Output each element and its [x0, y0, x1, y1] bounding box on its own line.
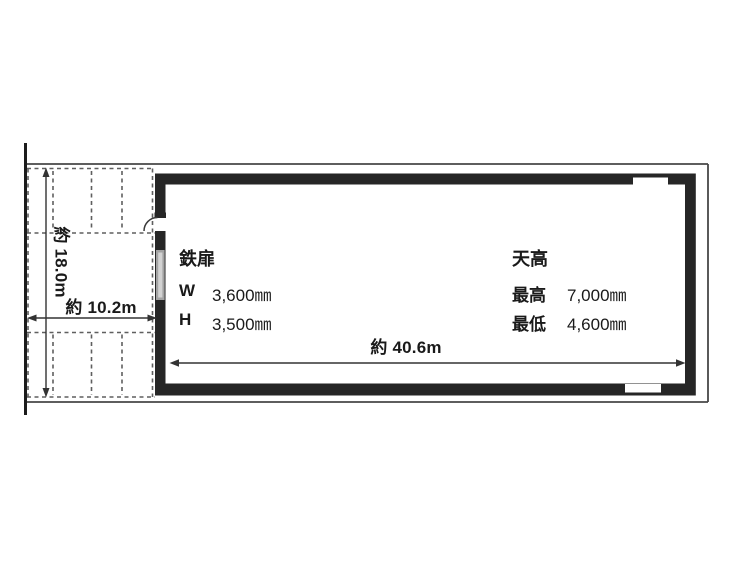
- ceiling-height-title: 天高: [512, 245, 627, 271]
- steel-door-h-label: H: [179, 310, 212, 335]
- ceiling-min-label: 最低: [512, 310, 567, 335]
- floor-plan-canvas: 約 40.6m 約 10.2m 約 18.0m 鉄扉 W 3,600㎜ H 3,…: [0, 0, 750, 563]
- entry-door-gap: [155, 218, 167, 232]
- steel-door-rows: W 3,600㎜ H 3,500㎜: [179, 281, 272, 335]
- steel-door-marker: [156, 250, 165, 300]
- steel-door-spec: 鉄扉 W 3,600㎜ H 3,500㎜: [179, 245, 272, 335]
- dim-width-label: 約 40.6m: [370, 339, 441, 356]
- steel-door-w-value: 3,600㎜: [212, 281, 272, 306]
- ceiling-max-label: 最高: [512, 281, 567, 306]
- floor-plan-drawing: [0, 0, 750, 563]
- dim-frontage-label: 約 10.2m: [65, 299, 136, 316]
- ceiling-min-value: 4,600㎜: [567, 310, 627, 335]
- steel-door-rect-inner: [158, 253, 162, 298]
- ceiling-height-rows: 最高 7,000㎜ 最低 4,600㎜: [512, 281, 627, 335]
- entry-door-swing: [144, 213, 166, 232]
- dim-depth-arrow-bottom: [43, 388, 50, 398]
- steel-door-w-label: W: [179, 281, 212, 306]
- bottom-wall-opening: [625, 384, 661, 393]
- ceiling-max-value: 7,000㎜: [567, 281, 627, 306]
- ceiling-height-spec: 天高 最高 7,000㎜ 最低 4,600㎜: [512, 245, 627, 335]
- dim-depth: [43, 168, 50, 398]
- steel-door-h-value: 3,500㎜: [212, 310, 272, 335]
- top-wall-opening: [633, 178, 668, 187]
- dim-depth-label: 約 18.0m: [53, 226, 70, 297]
- steel-door-title: 鉄扉: [179, 245, 272, 271]
